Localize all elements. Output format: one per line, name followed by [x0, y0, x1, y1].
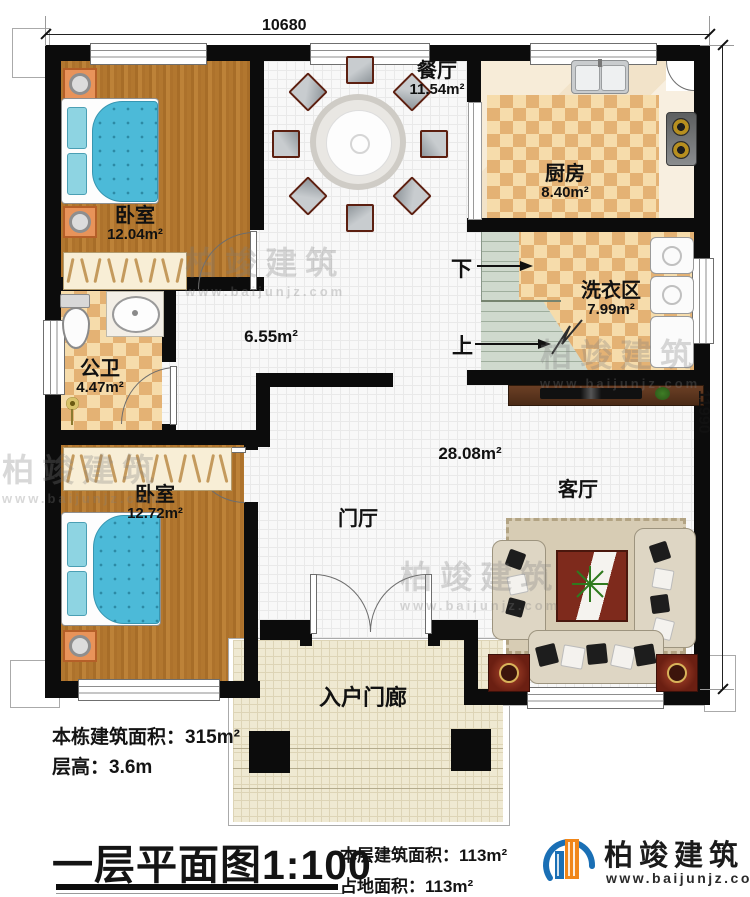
- coffee-table: [556, 550, 628, 622]
- extension-line: [700, 689, 734, 690]
- laundry-label: 洗衣区 7.99m²: [551, 280, 671, 319]
- floor-area-text: 本层建筑面积：113m²: [340, 841, 507, 866]
- washing-machine: [650, 237, 694, 274]
- drain-stem: [71, 409, 73, 425]
- plant-decor: [655, 387, 670, 400]
- dimension-right-value: 11990: [694, 390, 712, 434]
- dimension-line-top: [45, 34, 710, 35]
- wall-segment: [467, 370, 710, 385]
- dining-table: [310, 94, 406, 190]
- dining-chair: [346, 56, 374, 84]
- kitchen-label: 厨房 8.40m²: [505, 163, 625, 202]
- logo-name: 柏竣建筑: [604, 832, 744, 874]
- stove: [666, 112, 697, 166]
- wall-segment: [256, 373, 393, 387]
- laundry-tub: [650, 316, 694, 368]
- kitchen-sink: [571, 60, 629, 94]
- end-table: [488, 654, 530, 692]
- total-area-text: 本栋建筑面积：315m²: [52, 722, 240, 749]
- floor-height-text: 层高：3.6m: [52, 752, 152, 779]
- porch-step-line: [233, 788, 503, 789]
- wall-segment: [45, 681, 78, 698]
- dimension-line-right: [722, 45, 723, 690]
- stairs-landing-line: [481, 300, 561, 302]
- porch-pillar: [451, 729, 491, 771]
- wall-segment: [244, 445, 258, 450]
- stairs-up-label: 上: [452, 330, 473, 360]
- stairs-up-arrowhead: [538, 339, 551, 349]
- extension-line: [700, 45, 734, 46]
- bathroom-sink: [112, 296, 160, 333]
- sofa-long: [528, 630, 664, 684]
- wall-segment: [250, 45, 264, 230]
- logo-icon: [540, 830, 600, 890]
- window: [78, 679, 220, 701]
- title-underline-thick: [56, 884, 338, 890]
- bed: [61, 98, 159, 204]
- floor-plan: 下 上 卧室 12.04m² 餐厅 11.54m² 厨房 8.40m² 洗衣区 …: [0, 0, 750, 897]
- sofa-single: [492, 540, 546, 640]
- toilet: [60, 294, 90, 308]
- logo: 柏竣建筑 www.baijunjz.com: [540, 830, 740, 892]
- wall-segment: [256, 387, 270, 447]
- living-area-label: 28.08m²: [410, 444, 530, 463]
- dining-label: 餐厅 11.54m²: [377, 60, 497, 99]
- window: [527, 687, 664, 709]
- window: [90, 43, 207, 65]
- tv: [540, 388, 642, 399]
- window: [692, 258, 714, 344]
- dining-chair: [272, 130, 300, 158]
- stairs-down-label: 下: [451, 253, 472, 283]
- porch-pillar: [249, 731, 290, 773]
- bed: [61, 512, 161, 626]
- logo-url: www.baijunjz.com: [606, 870, 750, 886]
- dining-chair: [346, 204, 374, 232]
- hallway-label: 门厅: [298, 508, 418, 530]
- wardrobe: [63, 252, 187, 290]
- bedroom1-label: 卧室 12.04m²: [75, 205, 195, 244]
- end-table: [656, 654, 698, 692]
- dimension-top-value: 10680: [262, 17, 307, 35]
- bedroom2-label: 卧室 12.72m²: [95, 484, 215, 523]
- footprint-area-text: 占地面积：113m²: [340, 872, 473, 897]
- dining-chair: [420, 130, 448, 158]
- title-underline-thin: [56, 893, 344, 894]
- sliding-door: [468, 102, 482, 220]
- plan-title: 一层平面图1:100: [52, 831, 372, 891]
- entry-door-leaf: [425, 574, 432, 634]
- corridor-area-label: 6.55m²: [211, 327, 331, 346]
- bedroom1-door-leaf: [250, 231, 257, 290]
- stairs-down-arrow: [477, 265, 521, 267]
- porch-label: 入户门廊: [288, 686, 438, 711]
- entry-door-leaf: [310, 574, 317, 634]
- stairs-break-line: [548, 318, 588, 366]
- wall-segment: [244, 502, 258, 698]
- wall-segment: [162, 291, 176, 362]
- wall-segment: [467, 218, 710, 232]
- wall-segment: [45, 430, 270, 445]
- living-label: 客厅: [518, 479, 638, 501]
- stairs-up-arrow: [475, 343, 539, 345]
- stairs-down-arrowhead: [520, 261, 533, 271]
- bathroom-label: 公卫 4.47m²: [40, 358, 160, 397]
- bathroom-door-leaf: [170, 366, 177, 425]
- nightstand: [63, 68, 97, 100]
- nightstand: [63, 630, 97, 662]
- plan-title-main: 一层平面图: [52, 842, 262, 888]
